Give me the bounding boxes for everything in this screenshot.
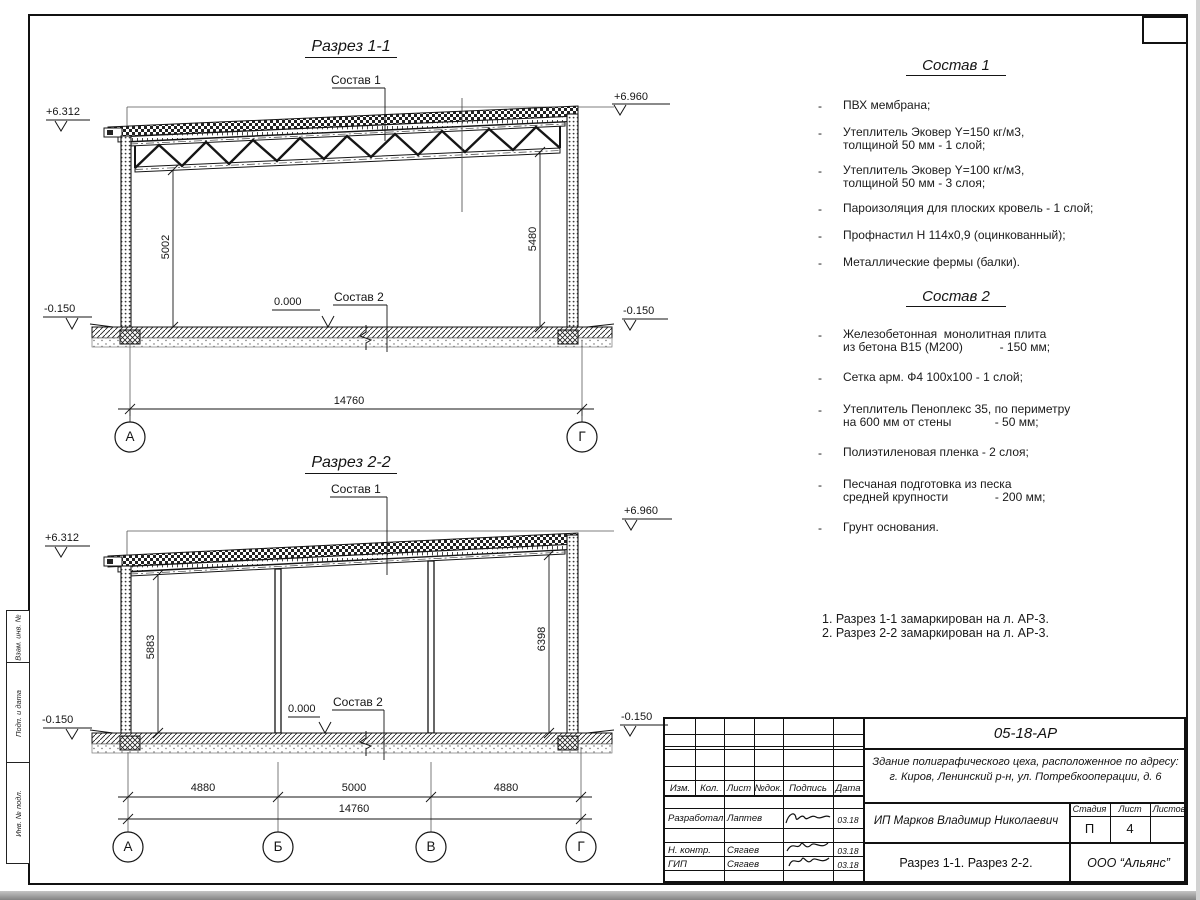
elevation-mark: +6.312 xyxy=(46,106,80,118)
axis-bubble-v: В xyxy=(416,839,446,854)
note-line: 1. Разрез 1-1 замаркирован на л. АР-3. xyxy=(822,613,1049,627)
bullet: - xyxy=(818,99,843,113)
scan-edge-bottom xyxy=(0,891,1200,900)
sostav2-list: -Железобетонная монолитная плита из бето… xyxy=(818,328,1163,553)
floor-slab xyxy=(92,733,612,744)
bullet: - xyxy=(818,403,843,428)
list-item: -Металлические фермы (балки). xyxy=(818,256,1163,270)
bullet: - xyxy=(818,202,843,216)
bullet: - xyxy=(818,521,843,535)
signature-gip xyxy=(787,852,831,871)
sheet-title: Разрез 1-1. Разрез 2-2. xyxy=(863,856,1069,870)
sostav1-callout: Состав 1 xyxy=(331,73,381,87)
organization: ООО “Альянс” xyxy=(1069,856,1188,870)
elevation-mark: -0.150 xyxy=(42,714,73,726)
sostav2-callout: Состав 2 xyxy=(334,290,384,304)
drawing-sheet: Взам. инв. № Подп. и дата Инв. № подл. xyxy=(0,0,1200,900)
date-gip: 03.18 xyxy=(833,860,863,870)
bullet: - xyxy=(818,478,843,503)
elevation-mark: +6.960 xyxy=(614,91,648,103)
stage-value: П xyxy=(1069,821,1110,836)
dim-height-left: 5002 xyxy=(160,225,172,269)
sheet-label: Лист xyxy=(1110,804,1150,814)
bullet: - xyxy=(818,371,843,385)
date-developer: 03.18 xyxy=(833,815,863,825)
col-list: Лист xyxy=(724,783,754,794)
column-b xyxy=(275,569,281,733)
list-item: -Профнастил Н 114х0,9 (оцинкованный); xyxy=(818,229,1163,243)
wall-right xyxy=(567,114,578,332)
bullet: - xyxy=(818,446,843,460)
title-block: Изм. Кол. Лист №док. Подпись Дата Разраб… xyxy=(663,717,1186,883)
dim-span1: 4880 xyxy=(173,782,233,794)
bullet: - xyxy=(818,229,843,243)
floor-slab xyxy=(92,327,612,338)
bullet: - xyxy=(818,164,843,189)
dim-height-right: 5480 xyxy=(527,217,539,261)
sostav1-list: -ПВХ мембрана; -Утеплитель Эковер Y=150 … xyxy=(818,99,1163,283)
list-item: -ПВХ мембрана; xyxy=(818,99,1163,113)
notes: 1. Разрез 1-1 замаркирован на л. АР-3. 2… xyxy=(822,613,1049,640)
dim-height-left: 5883 xyxy=(145,625,157,669)
name-developer: Лаптев xyxy=(727,813,762,824)
role-developer: Разработал xyxy=(668,813,723,824)
col-kol: Кол. xyxy=(695,783,724,794)
date-ncontrol: 03.18 xyxy=(833,846,863,856)
stage-label: Стадия xyxy=(1069,804,1110,814)
wall-left xyxy=(121,566,131,737)
sostav1-callout: Состав 1 xyxy=(331,482,381,496)
axis-bubble-g: Г xyxy=(566,839,596,854)
sand-layer xyxy=(92,338,612,347)
axis-bubble-g: Г xyxy=(567,429,597,444)
sheet-number: 4 xyxy=(1110,821,1150,836)
col-ndok: №док. xyxy=(754,783,783,794)
axis-bubble-b: Б xyxy=(263,839,293,854)
dim-span2: 5000 xyxy=(324,782,384,794)
column-v xyxy=(428,561,434,733)
dim-span3: 4880 xyxy=(476,782,536,794)
list-item: -Утеплитель Пеноплекс 35, по периметру н… xyxy=(818,403,1163,428)
sostav2-heading: Состав 2 xyxy=(906,288,1006,307)
role-gip: ГИП xyxy=(668,859,687,870)
elevation-mark: +6.960 xyxy=(624,505,658,517)
dim-span: 14760 xyxy=(319,395,379,407)
sheets-label: Листов xyxy=(1150,804,1188,814)
section-2-title: Разрез 2-2 xyxy=(305,454,397,474)
list-item: -Железобетонная монолитная плита из бето… xyxy=(818,328,1163,353)
axis-bubble-a: А xyxy=(115,429,145,444)
col-podpis: Подпись xyxy=(783,783,833,794)
bullet: - xyxy=(818,256,843,270)
col-data: Дата xyxy=(833,783,863,794)
elevation-mark: -0.150 xyxy=(621,711,652,723)
client-name: ИП Марков Владимир Николаевич xyxy=(863,815,1069,827)
col-izm: Изм. xyxy=(665,783,695,794)
bullet: - xyxy=(818,126,843,151)
wall-left xyxy=(121,136,131,332)
elevation-mark: -0.150 xyxy=(44,303,75,315)
bullet: - xyxy=(818,328,843,353)
list-item: -Пароизоляция для плоских кровель - 1 сл… xyxy=(818,202,1163,216)
list-item: -Грунт основания. xyxy=(818,521,1163,535)
name-gip: Сягаев xyxy=(727,859,759,870)
list-item: -Песчаная подготовка из песка средней кр… xyxy=(818,478,1163,503)
name-ncontrol: Сягаев xyxy=(727,845,759,856)
sand-layer xyxy=(92,744,612,753)
list-item: -Утеплитель Эковер Y=150 кг/м3, толщиной… xyxy=(818,126,1163,151)
object-line2: г. Киров, Ленинский р-н, ул. Потребкоопе… xyxy=(863,771,1188,783)
role-ncontrol: Н. контр. xyxy=(668,845,711,856)
wall-right xyxy=(567,535,578,737)
note-line: 2. Разрез 2-2 замаркирован на л. АР-3. xyxy=(822,627,1049,641)
signature-developer xyxy=(785,809,831,827)
elevation-mark: 0.000 xyxy=(288,703,316,715)
sostav1-heading: Состав 1 xyxy=(906,57,1006,76)
scan-edge-right xyxy=(1196,0,1200,900)
elevation-mark: 0.000 xyxy=(274,296,302,308)
sostav2-callout: Состав 2 xyxy=(333,695,383,709)
dim-height-right: 6398 xyxy=(536,617,548,661)
doc-number: 05-18-АР xyxy=(863,725,1188,742)
elevation-mark: -0.150 xyxy=(623,305,654,317)
list-item: -Полиэтиленовая пленка - 2 слоя; xyxy=(818,446,1163,460)
section-1-title: Разрез 1-1 xyxy=(305,38,397,58)
axis-bubble-a: А xyxy=(113,839,143,854)
list-item: -Сетка арм. Ф4 100х100 - 1 слой; xyxy=(818,371,1163,385)
list-item: -Утеплитель Эковер Y=100 кг/м3, толщиной… xyxy=(818,164,1163,189)
dim-span-total: 14760 xyxy=(324,803,384,815)
elevation-mark: +6.312 xyxy=(45,532,79,544)
object-line1: Здание полиграфического цеха, расположен… xyxy=(863,756,1188,768)
